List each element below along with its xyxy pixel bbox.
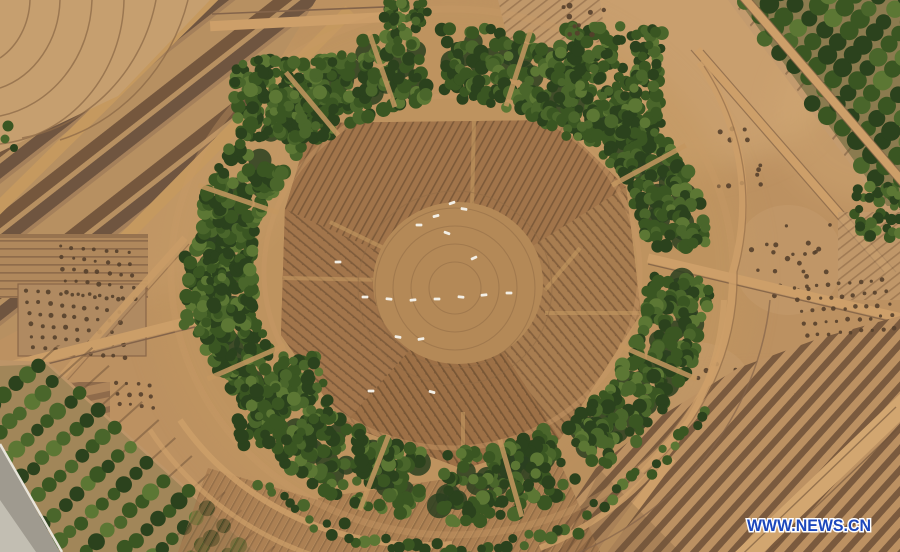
svg-text:WWW.NEWS.CN: WWW.NEWS.CN [747, 516, 871, 535]
